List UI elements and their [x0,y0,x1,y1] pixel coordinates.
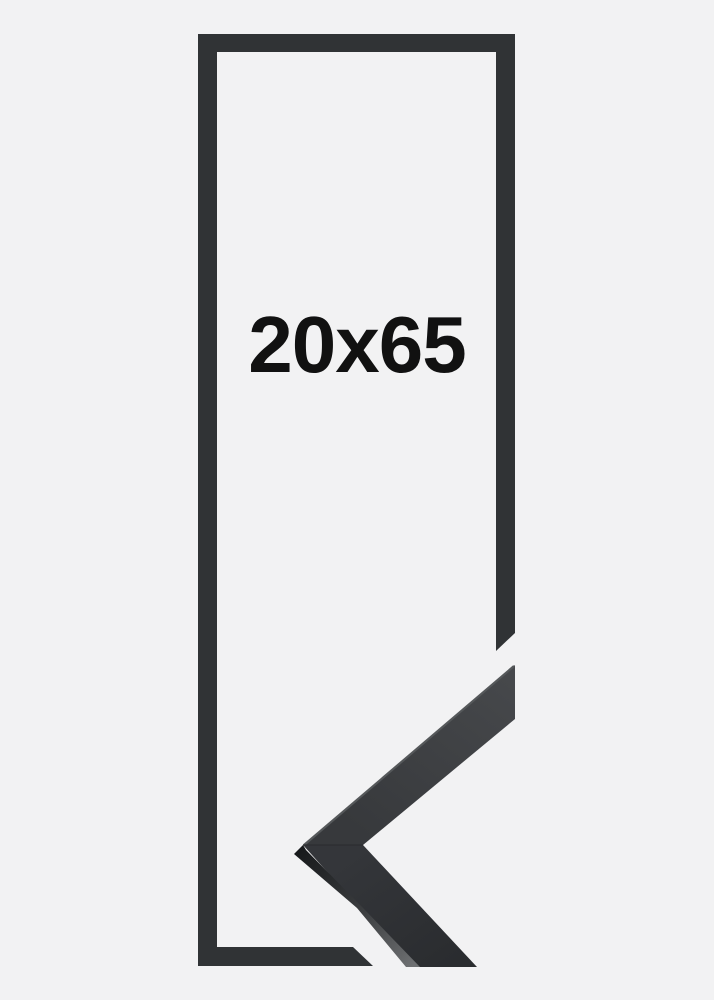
frame-illustration [0,0,714,1000]
corner-photo-edge-highlight [304,666,514,845]
product-image-frame-20x65: 20x65 [0,0,714,1000]
frame-corner-photo [294,665,515,967]
frame-size-label: 20x65 [0,305,714,385]
